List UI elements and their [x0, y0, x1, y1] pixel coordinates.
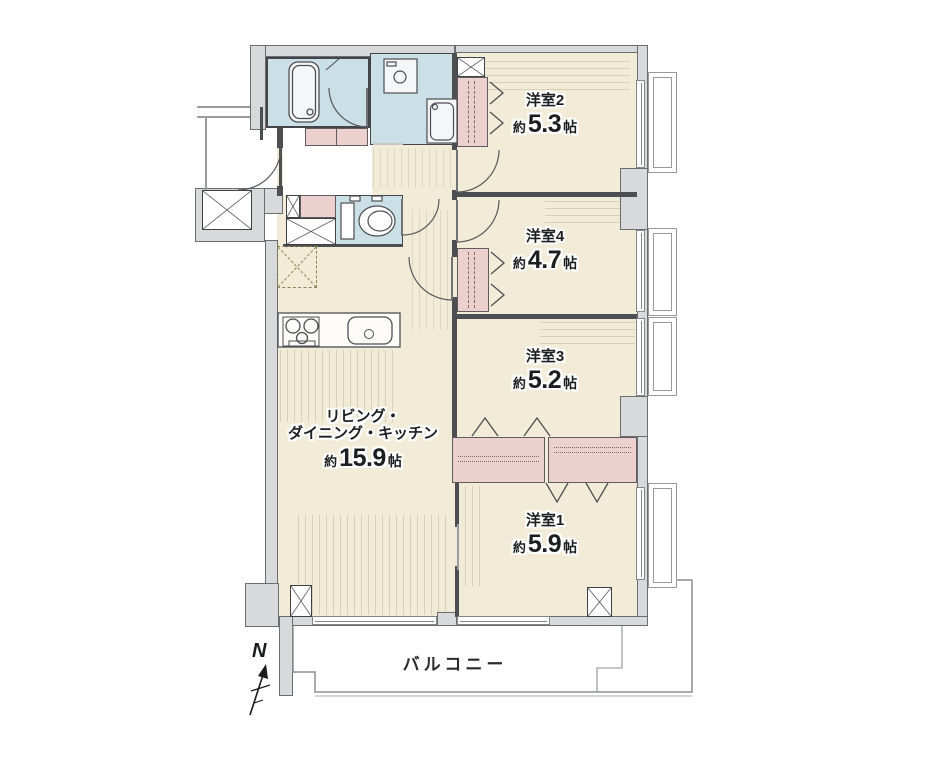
- area-approx: 約: [513, 256, 526, 271]
- area-unit: 帖: [563, 255, 577, 271]
- area-unit: 帖: [563, 539, 577, 555]
- area-value: 5.3: [528, 110, 561, 138]
- toilet-fixture: [341, 196, 395, 239]
- area-approx: 約: [513, 540, 526, 555]
- area-approx: 約: [513, 120, 526, 135]
- room-name: 洋室2: [470, 92, 620, 109]
- floorplan: 洋室2 約5.3帖 洋室4 約4.7帖 洋室3 約5.2帖 洋室1 約5.9帖 …: [0, 0, 943, 757]
- area-approx: 約: [324, 454, 337, 469]
- bathtub-fixture: [289, 58, 340, 122]
- room-area: 約4.7帖: [470, 246, 620, 275]
- room-name: リビング・: [278, 408, 448, 425]
- area-value: 4.7: [528, 246, 561, 274]
- area-value: 15.9: [339, 444, 386, 472]
- room-label-ldk: リビング・ ダイニング・キッチン 約15.9帖: [278, 408, 448, 472]
- room-label-western4: 洋室4 約4.7帖: [470, 228, 620, 275]
- north-arrow: [250, 664, 270, 715]
- area-unit: 帖: [388, 453, 402, 469]
- area-unit: 帖: [563, 375, 577, 391]
- kitchen-counter: [278, 313, 400, 347]
- room-name: ダイニング・キッチン: [278, 425, 448, 442]
- room-area: 約5.3帖: [470, 110, 620, 139]
- room-label-western2: 洋室2 約5.3帖: [470, 92, 620, 139]
- area-value: 5.2: [528, 366, 561, 394]
- room-label-western1: 洋室1 約5.9帖: [470, 512, 620, 559]
- closet-door-marks: [472, 82, 608, 502]
- north-label: N: [252, 640, 266, 663]
- washbasin-fixture: [384, 59, 417, 93]
- washing-machine-fixture: [427, 99, 457, 143]
- room-area: 約15.9帖: [278, 444, 448, 473]
- room-name: 洋室4: [470, 228, 620, 245]
- room-name: 洋室1: [470, 512, 620, 529]
- room-name: 洋室3: [470, 348, 620, 365]
- room-area: 約5.9帖: [470, 530, 620, 559]
- area-value: 5.9: [528, 530, 561, 558]
- balcony-label: バルコニー: [380, 650, 530, 675]
- room-area: 約5.2帖: [470, 366, 620, 395]
- area-unit: 帖: [563, 119, 577, 135]
- room-label-western3: 洋室3 約5.2帖: [470, 348, 620, 395]
- door-arcs: [238, 88, 499, 300]
- balcony-fence: [293, 580, 692, 696]
- area-approx: 約: [513, 376, 526, 391]
